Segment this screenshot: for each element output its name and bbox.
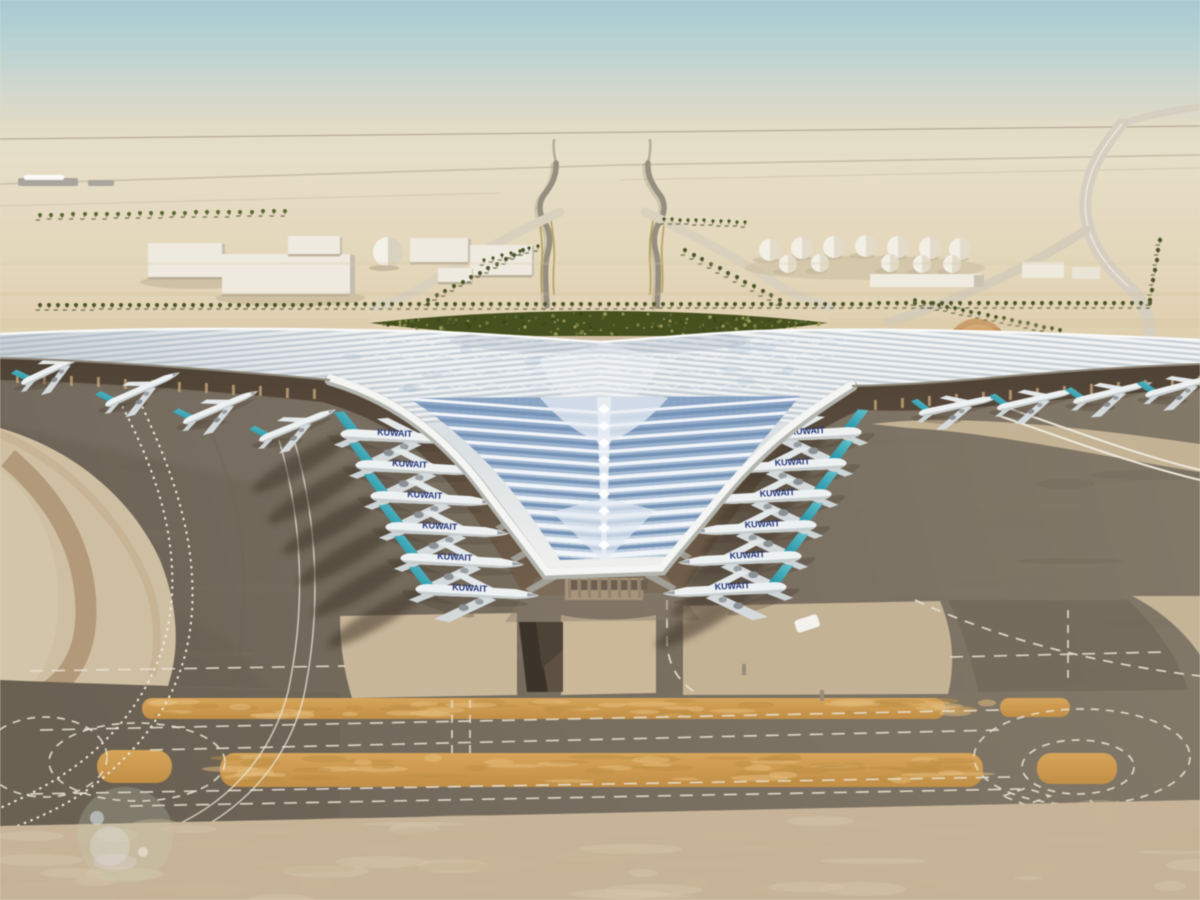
svg-text:KUWAIT: KUWAIT (377, 427, 413, 439)
svg-text:KUWAIT: KUWAIT (452, 582, 488, 594)
svg-text:KUWAIT: KUWAIT (437, 551, 473, 563)
svg-text:KUWAIT: KUWAIT (774, 456, 810, 468)
svg-text:KUWAIT: KUWAIT (729, 549, 765, 561)
svg-text:KUWAIT: KUWAIT (759, 487, 795, 499)
svg-text:KUWAIT: KUWAIT (422, 520, 458, 532)
svg-text:KUWAIT: KUWAIT (407, 489, 443, 501)
svg-text:KUWAIT: KUWAIT (392, 458, 428, 470)
svg-text:KUWAIT: KUWAIT (714, 580, 750, 592)
svg-text:KUWAIT: KUWAIT (744, 518, 780, 530)
